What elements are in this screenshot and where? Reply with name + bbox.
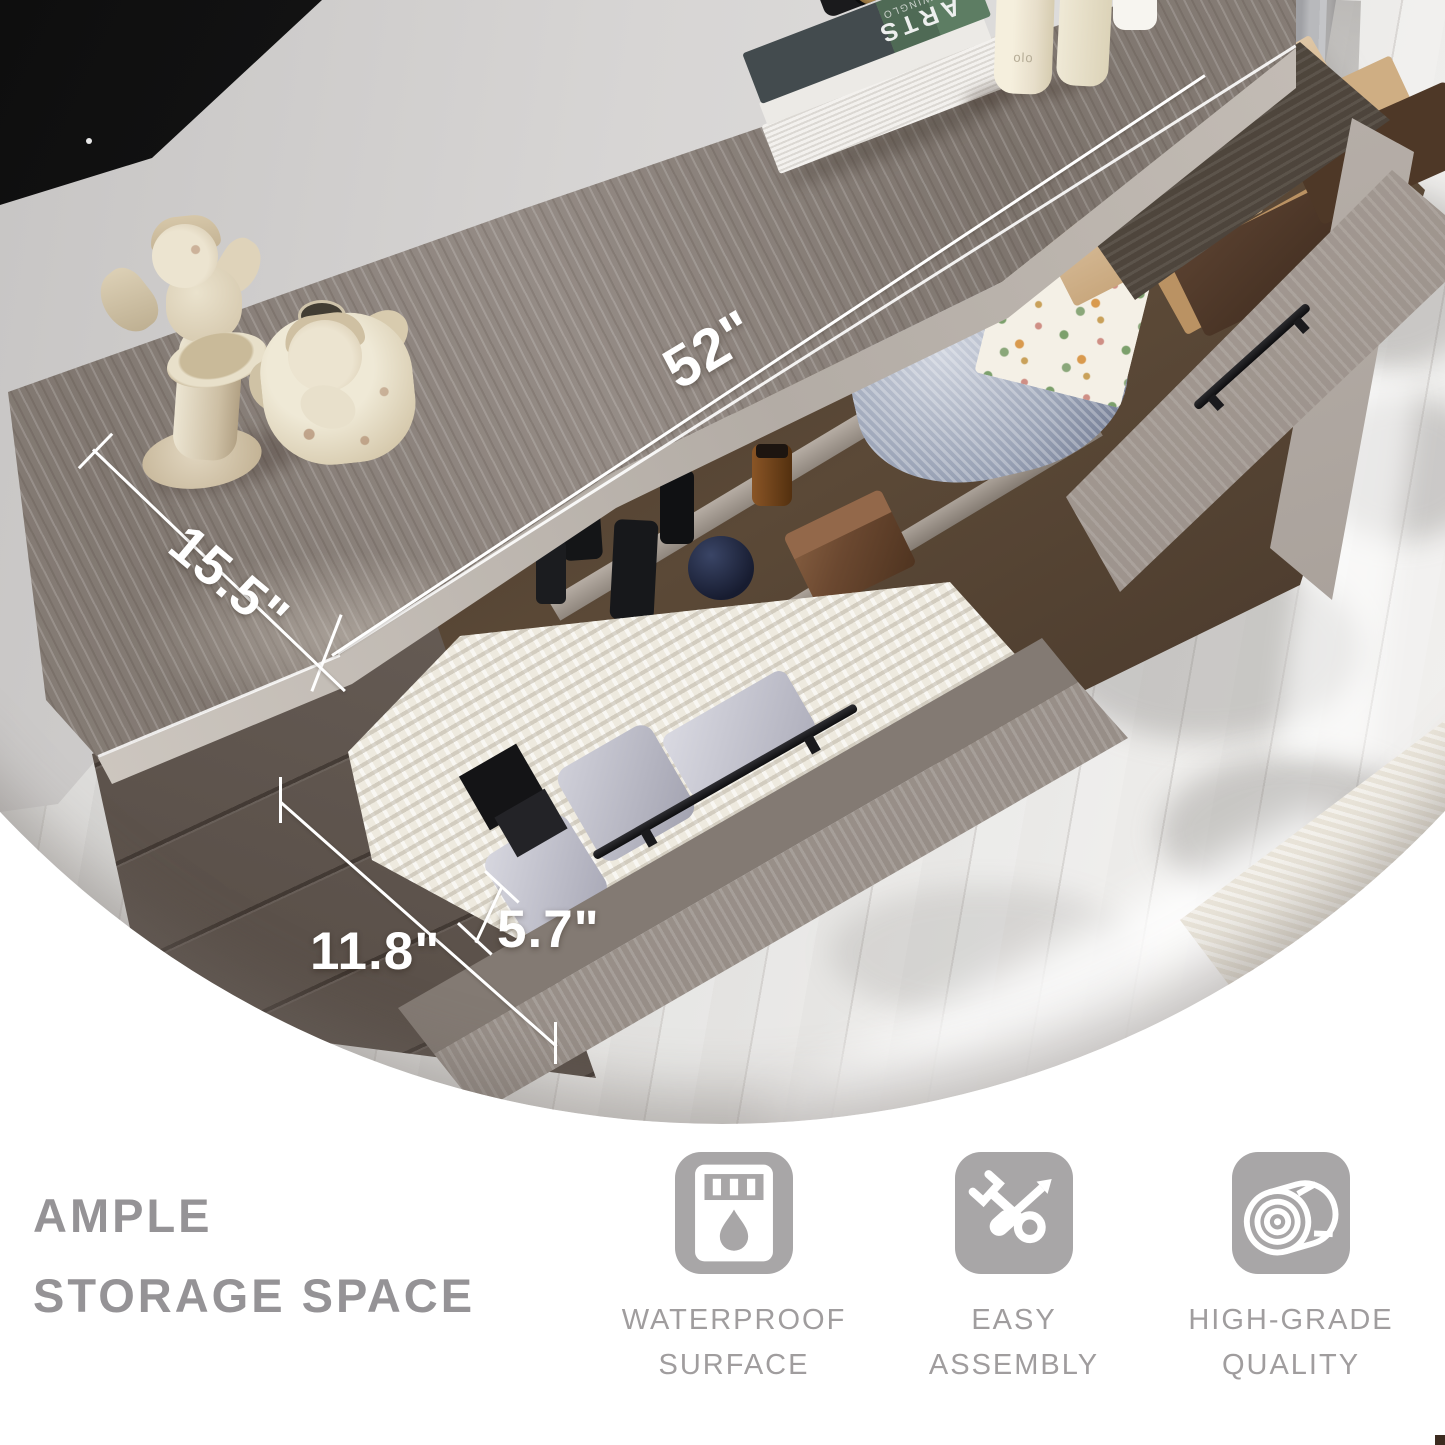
dimension-label-height: 11.8" <box>310 921 440 982</box>
dimension-tick <box>554 1022 557 1064</box>
headline-line2: STORAGE SPACE <box>33 1272 475 1319</box>
feature-label-line1: EASY <box>884 1298 1144 1343</box>
feature-label: EASY ASSEMBLY <box>884 1298 1144 1388</box>
corner-mark <box>1435 1435 1445 1445</box>
feature-easy-assembly: EASY ASSEMBLY <box>884 1152 1144 1388</box>
feature-label-line2: ASSEMBLY <box>884 1343 1144 1388</box>
headline: AMPLE STORAGE SPACE <box>33 1192 475 1319</box>
feature-label-line1: HIGH-GRADE <box>1161 1298 1421 1343</box>
feature-high-grade-quality: HIGH-GRADE QUALITY <box>1161 1152 1421 1388</box>
assembly-icon <box>955 1152 1073 1274</box>
dimension-tick <box>279 777 282 823</box>
product-infographic: ARTS CHIWINGLO olo <box>0 0 1445 1445</box>
feature-label-line2: SURFACE <box>604 1343 864 1388</box>
quality-icon <box>1232 1152 1350 1274</box>
headline-line1: AMPLE <box>33 1192 475 1239</box>
feature-waterproof: WATERPROOF SURFACE <box>604 1152 864 1388</box>
feature-label: HIGH-GRADE QUALITY <box>1161 1298 1421 1388</box>
feature-label-line1: WATERPROOF <box>604 1298 864 1343</box>
dimension-label-drawer: 5.7" <box>497 899 600 960</box>
waterproof-icon <box>675 1152 793 1274</box>
feature-label: WATERPROOF SURFACE <box>604 1298 864 1388</box>
feature-label-line2: QUALITY <box>1161 1343 1421 1388</box>
